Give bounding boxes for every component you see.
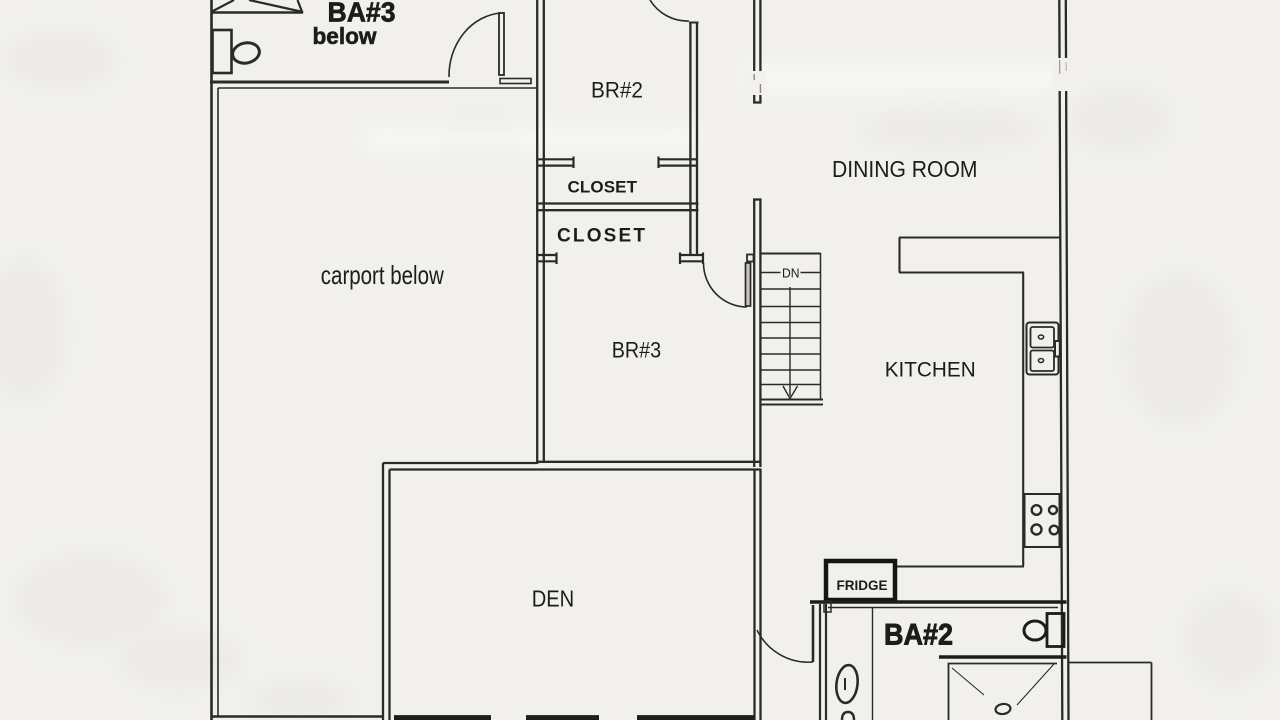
svg-text:FRIDGE: FRIDGE xyxy=(837,577,888,593)
svg-text:KITCHEN: KITCHEN xyxy=(885,359,976,382)
svg-text:CLOSET: CLOSET xyxy=(568,178,638,197)
svg-text:BA#2: BA#2 xyxy=(884,619,953,652)
svg-text:carport below: carport below xyxy=(321,260,444,290)
svg-text:BR#2: BR#2 xyxy=(591,78,643,103)
svg-text:DEN: DEN xyxy=(532,586,575,612)
svg-text:BR#3: BR#3 xyxy=(612,338,662,363)
svg-text:DN: DN xyxy=(782,267,800,281)
svg-text:DINING ROOM: DINING ROOM xyxy=(832,156,978,182)
svg-text:below: below xyxy=(313,23,377,49)
